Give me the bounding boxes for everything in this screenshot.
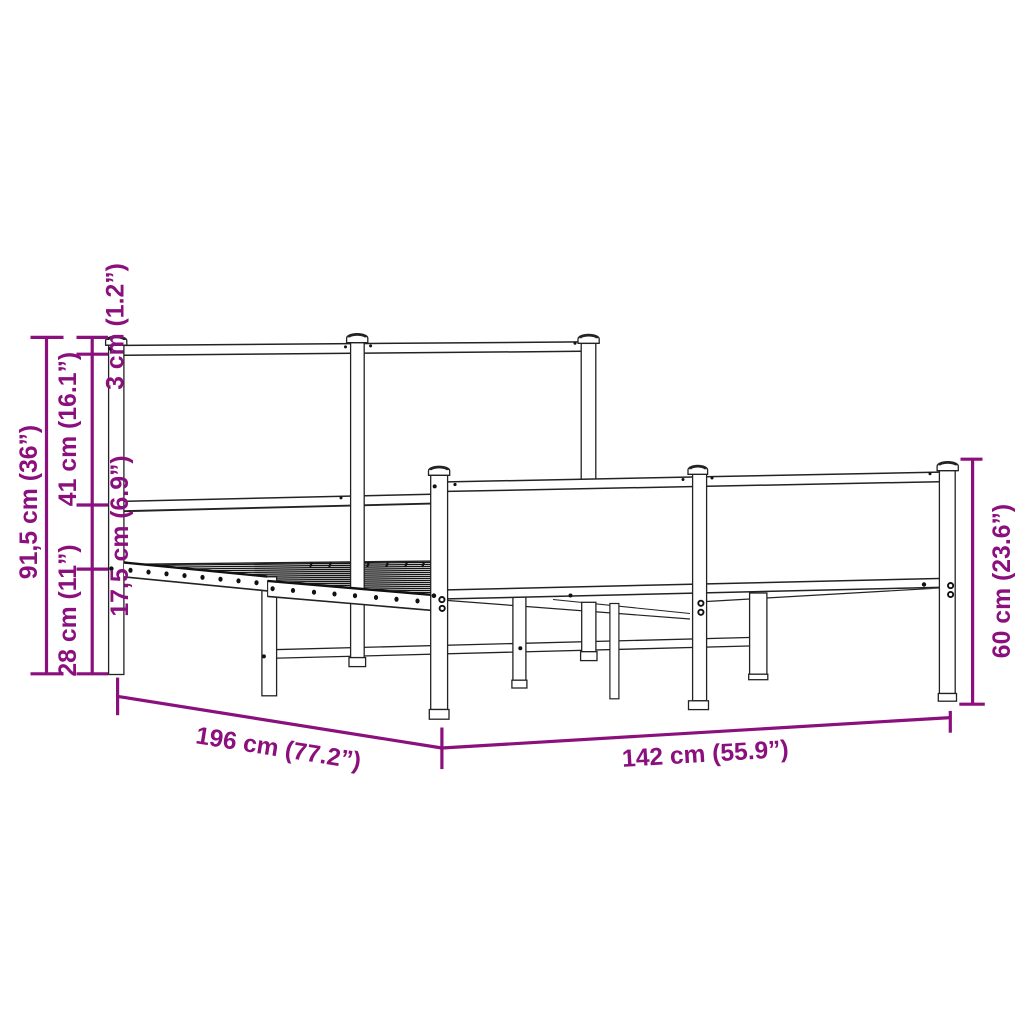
svg-text:17,5 cm (6.9”): 17,5 cm (6.9”) [107,455,134,616]
svg-text:91,5 cm (36”): 91,5 cm (36”) [16,425,43,579]
svg-text:60 cm (23.6”): 60 cm (23.6”) [989,504,1016,658]
svg-text:28 cm (11”): 28 cm (11”) [55,544,82,676]
svg-text:3 cm (1.2”): 3 cm (1.2”) [103,263,130,390]
svg-text:41 cm (16.1”): 41 cm (16.1”) [55,352,82,506]
